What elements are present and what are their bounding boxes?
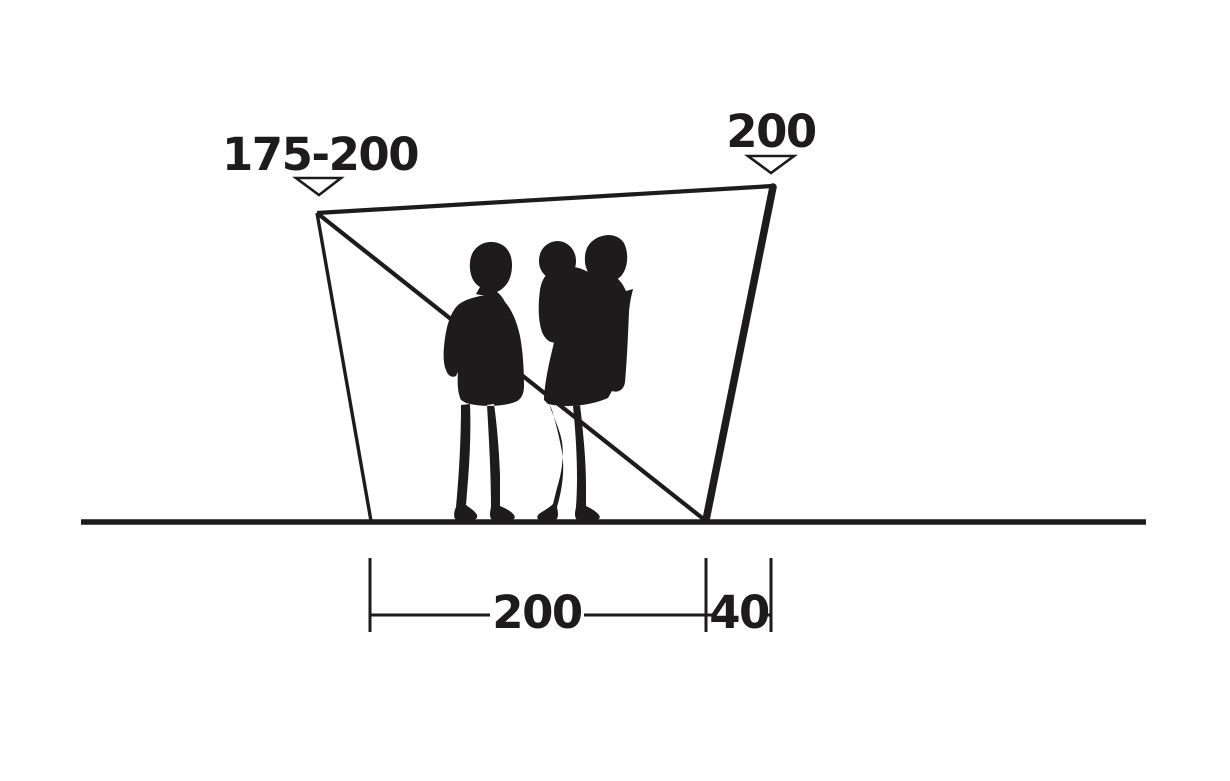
diagram-canvas: 175-200 200 200 40	[0, 0, 1230, 781]
adult-with-child-silhouette	[537, 235, 633, 520]
rear-height-dimension: 200	[726, 105, 816, 173]
rear-offset-dimension: 40	[706, 558, 771, 639]
canopy-front-edge	[317, 213, 371, 521]
triangle-down-icon	[296, 178, 341, 195]
base-depth-dimension: 200	[370, 558, 706, 639]
rear-height-label: 200	[726, 105, 816, 158]
front-height-dimension: 175-200	[222, 128, 418, 195]
adult-left-silhouette	[444, 242, 524, 520]
base-depth-label: 200	[492, 586, 582, 639]
rear-offset-label: 40	[709, 586, 769, 639]
rear-pole	[706, 187, 773, 520]
triangle-down-icon	[748, 156, 794, 173]
front-height-label: 175-200	[222, 128, 418, 181]
canopy-frame	[317, 186, 773, 521]
tent-dimension-diagram: 175-200 200 200 40	[0, 0, 1230, 781]
family-silhouette	[444, 235, 633, 520]
canopy-top-edge	[317, 186, 773, 213]
